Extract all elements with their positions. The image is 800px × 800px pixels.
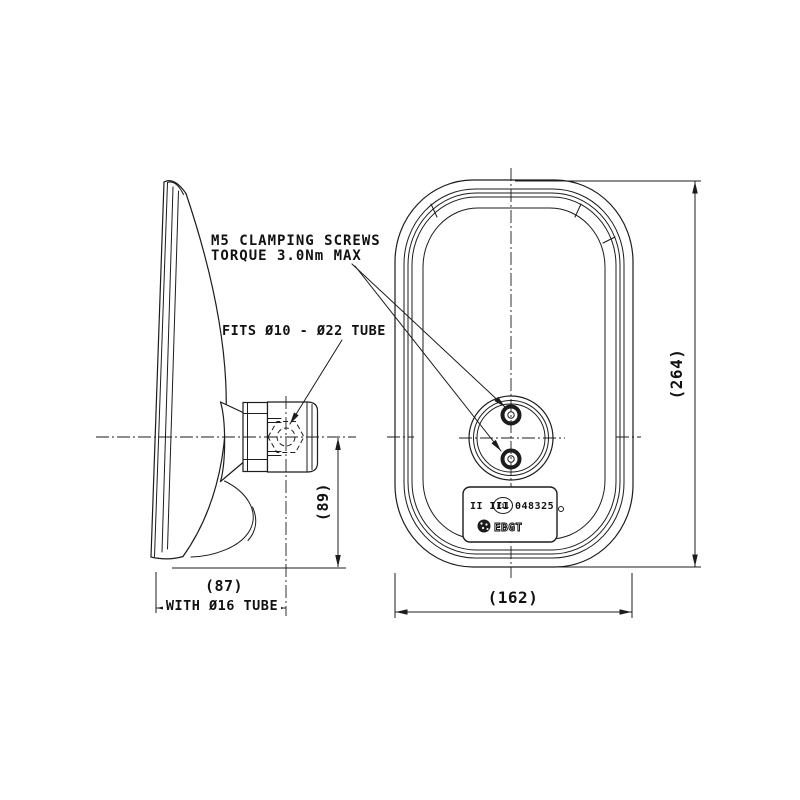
dim-text-width: (162) (488, 588, 539, 607)
dim-text-height: (264) (667, 349, 686, 400)
clamp-assembly (221, 402, 318, 482)
tube-fit-note: FITS Ø10 - Ø22 TUBE (222, 323, 386, 339)
dim-height-arrow-top (692, 182, 698, 194)
housing-rivet (559, 507, 564, 512)
globe-dot-2 (485, 523, 487, 525)
housing-boss-curve (191, 481, 253, 557)
globe-dot-1 (480, 522, 482, 524)
profile-rim-line-2 (168, 191, 179, 549)
bezel-tick-top-right (575, 204, 581, 217)
bezel-tick-right (603, 237, 615, 243)
e-mark-text: E11 (497, 502, 509, 510)
clamp-note-line2: TORQUE 3.0Nm MAX (211, 248, 362, 264)
profile-back-edge-outer (151, 182, 164, 557)
profile-rim-line-1 (162, 187, 173, 552)
profile-back-edge-inner (155, 183, 168, 557)
dim-text-depth: (87) (205, 577, 243, 595)
dim-drop-arrow-top (335, 438, 341, 450)
technical-drawing-canvas: II III E11 048325 EBGT M5 CLAMPING SCREW… (0, 0, 800, 800)
approval-label: II III E11 048325 EBGT (463, 487, 557, 542)
dimension-depth: (87) WITH Ø16 TUBE (156, 572, 286, 614)
dim-width-arrow-left (396, 609, 408, 615)
dim-height-arrow-bottom (692, 555, 698, 567)
with-tube-note: WITH Ø16 TUBE (166, 598, 278, 614)
brand-globe-icon (478, 520, 491, 533)
dim-text-arm-drop: (89) (314, 483, 332, 521)
dim-width-arrow-right (620, 609, 632, 615)
leader-bottom-screw (355, 266, 501, 451)
front-view-mirror-head: II III E11 048325 EBGT (395, 180, 633, 567)
brand-logo-text: EBGT (494, 521, 523, 534)
housing-boss-rim (248, 507, 256, 541)
clamp-note-line1: M5 CLAMPING SCREWS (211, 233, 381, 249)
approval-number: 048325 (515, 501, 554, 512)
dimension-width: (162) (395, 573, 632, 618)
globe-dot-3 (482, 527, 484, 529)
dim-drop-arrow-bottom (335, 555, 341, 567)
globe-dot-4 (487, 528, 489, 530)
profile-bottom-cap (151, 557, 183, 559)
